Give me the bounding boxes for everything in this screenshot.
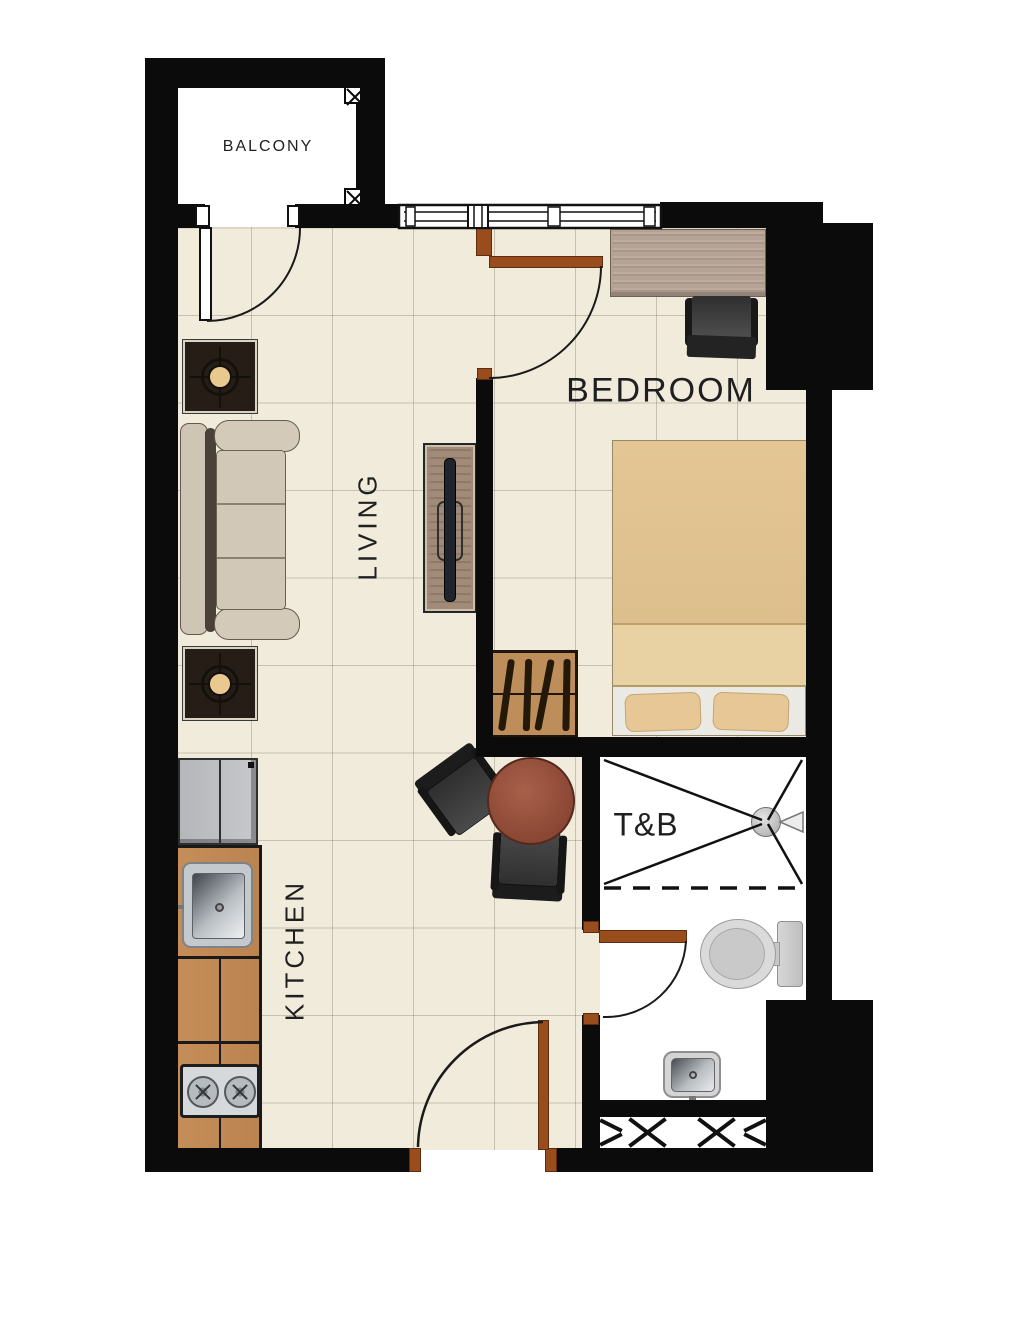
- balcony-door-jamb: [287, 205, 300, 227]
- kitchen-sink: [182, 862, 253, 948]
- toilet-seat: [709, 928, 765, 980]
- lamp-shade-icon: [208, 672, 232, 696]
- living-label: LIVING: [353, 471, 384, 580]
- toilet-tank: [777, 921, 803, 987]
- wall-bathroom-top: [476, 737, 832, 757]
- floor-plan: BALCONY LIVING KITCHEN BEDROOM T&B: [0, 0, 1024, 1326]
- wall-bathroom-left: [582, 757, 600, 930]
- blanket-fold: [613, 623, 807, 687]
- lamp-shade-icon: [208, 365, 232, 389]
- bathroom-sink: [663, 1051, 721, 1098]
- tv-console: [423, 443, 477, 613]
- wardrobe-rail: [498, 659, 515, 731]
- column-top-right: [766, 223, 873, 390]
- fridge-hinge: [248, 762, 254, 768]
- wall-bottom: [145, 1148, 420, 1172]
- bedroom-label: BEDROOM: [566, 372, 756, 411]
- burner-icon: [187, 1076, 219, 1108]
- kitchen-label: KITCHEN: [280, 879, 311, 1021]
- cushion-seam: [217, 503, 285, 505]
- wall-left: [145, 58, 178, 1172]
- wardrobe-rail: [523, 659, 533, 731]
- sofa: [180, 420, 302, 640]
- wardrobe: [490, 650, 578, 738]
- sofa-seam: [205, 428, 216, 632]
- sofa-seat-cushions: [216, 450, 286, 610]
- column-bottom-right: [766, 1000, 873, 1172]
- bathroom-door-jamb: [583, 1013, 599, 1025]
- tv-panel: [444, 458, 456, 602]
- wall-balcony-top: [145, 58, 385, 88]
- bed: [612, 440, 806, 736]
- toilet-bath-label: T&B: [613, 807, 678, 844]
- sofa-armrest-bottom: [214, 608, 300, 640]
- wall-bathroom-bottom: [598, 1100, 768, 1117]
- side-table-lower: [183, 647, 257, 720]
- sofa-backrest: [180, 423, 208, 635]
- burner-icon: [224, 1076, 256, 1108]
- balcony-door-leaf: [199, 227, 212, 321]
- office-chair: [685, 296, 758, 358]
- window-post-icon: [344, 188, 362, 206]
- wall-partition-bedroom: [476, 378, 493, 757]
- refrigerator: [178, 758, 258, 845]
- sink-drain: [689, 1071, 697, 1079]
- chair-back: [687, 335, 757, 359]
- louver-vent: [598, 1117, 768, 1148]
- entry-door-leaf: [538, 1020, 549, 1150]
- wall-bottom: [545, 1148, 873, 1172]
- cushion-seam: [217, 557, 285, 559]
- bed-blanket: [613, 441, 807, 623]
- side-table-upper: [183, 340, 257, 413]
- bedroom-door-leaf: [489, 256, 603, 268]
- shower-head: [751, 807, 781, 837]
- sink-drain: [215, 903, 224, 912]
- fridge-door-split: [219, 760, 221, 843]
- desk: [610, 229, 766, 297]
- sofa-armrest-top: [214, 420, 300, 452]
- bedroom-door-jamb: [477, 368, 492, 380]
- window-post-icon: [344, 86, 362, 104]
- bathroom-door-leaf: [599, 930, 687, 943]
- pillow: [712, 692, 789, 733]
- counter-divider: [219, 956, 221, 1151]
- wall-right: [806, 390, 832, 1000]
- wardrobe-rail: [534, 659, 555, 731]
- bathroom-door-jamb: [583, 921, 599, 933]
- wood-grain: [613, 232, 765, 294]
- entry-door-jamb: [545, 1148, 557, 1172]
- balcony-label: BALCONY: [223, 138, 313, 156]
- bedroom-door-jamb: [476, 228, 492, 256]
- entry-door-jamb: [409, 1148, 421, 1172]
- wall-bathroom-left: [582, 1015, 600, 1148]
- stove: [180, 1064, 260, 1118]
- living-window: [399, 205, 661, 228]
- dining-table: [487, 757, 575, 845]
- toilet: [700, 918, 804, 990]
- pillow: [624, 692, 701, 733]
- balcony-door-jamb: [195, 205, 210, 227]
- wardrobe-rail: [562, 659, 570, 731]
